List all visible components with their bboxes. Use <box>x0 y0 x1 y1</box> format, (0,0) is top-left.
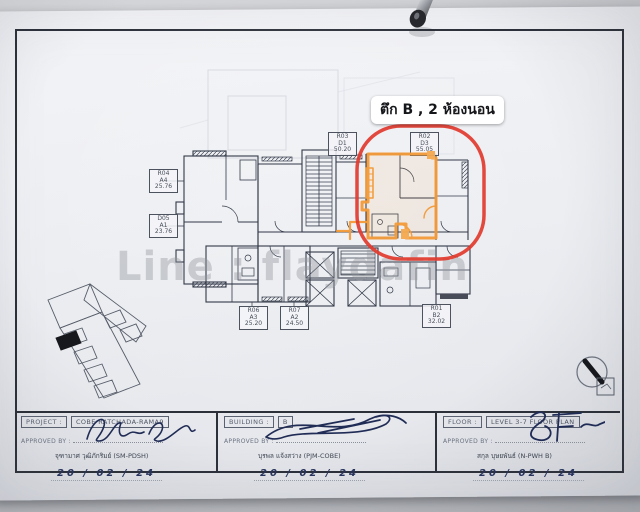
binder-clip <box>394 0 454 42</box>
photo-of-floor-plan: Line : flaydafin ตึก B , 2 ห้องนอน R04A4… <box>0 0 640 512</box>
highlight-outline <box>337 151 436 239</box>
highlight-callout: ตึก B , 2 ห้องนอน <box>371 96 504 124</box>
annotations <box>0 0 640 512</box>
